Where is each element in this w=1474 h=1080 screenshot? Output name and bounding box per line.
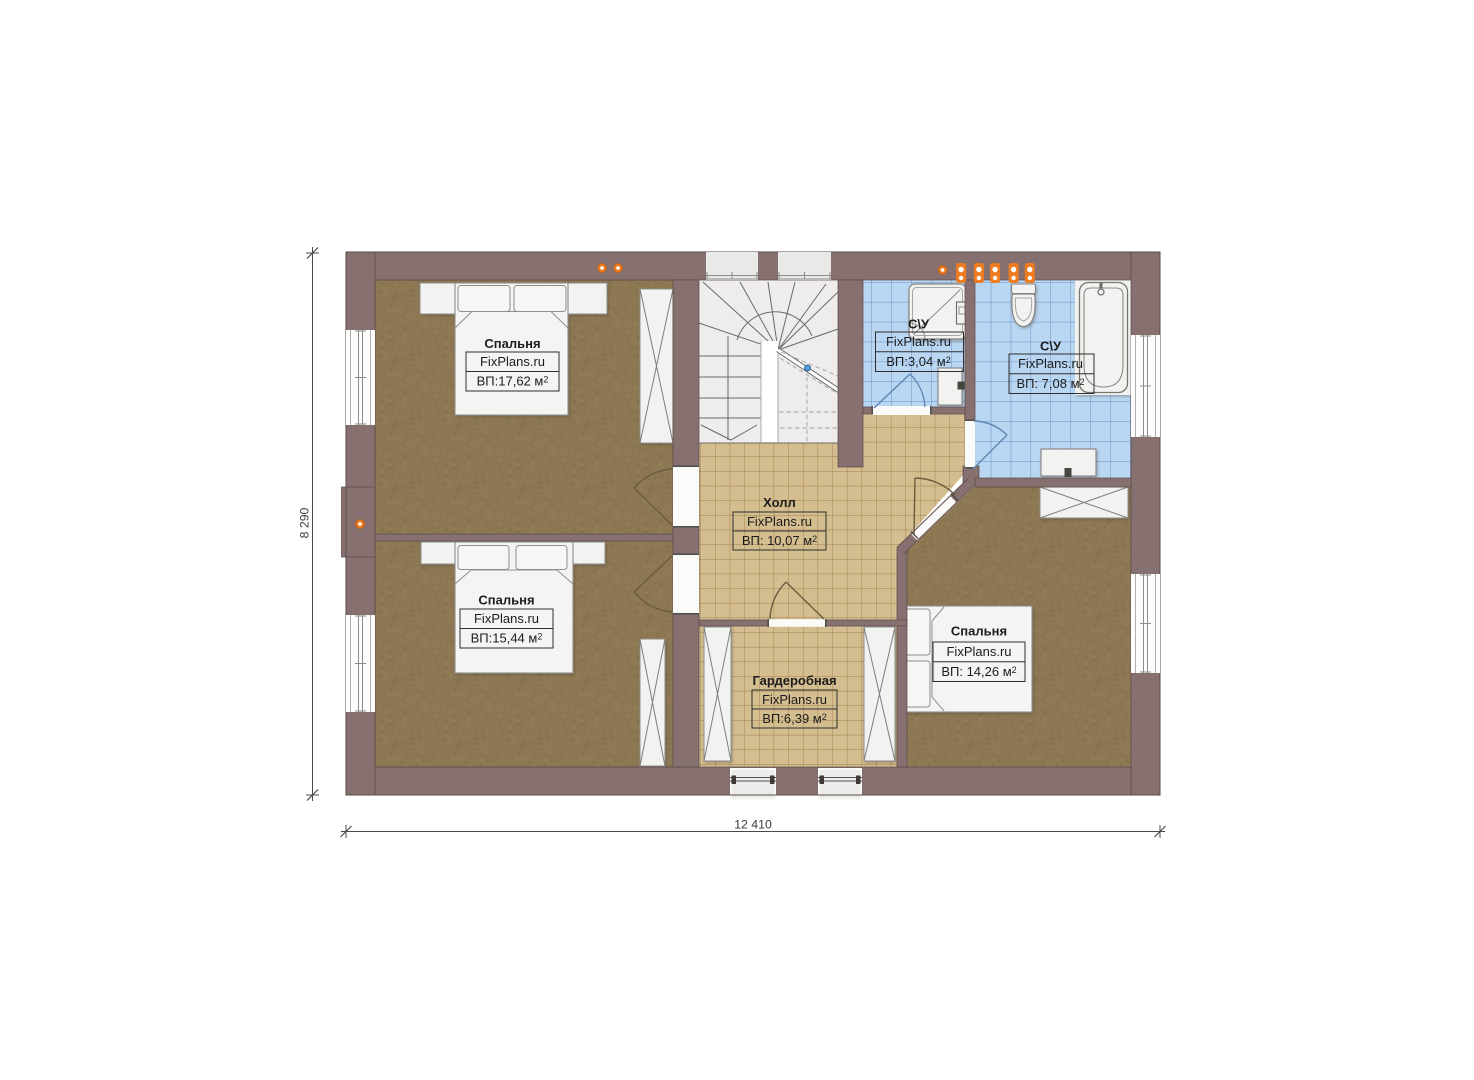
svg-text:ВП:6,39 м2: ВП:6,39 м2 xyxy=(762,711,827,726)
svg-text:ВП: 14,26 м2: ВП: 14,26 м2 xyxy=(941,664,1016,679)
svg-text:FixPlans.ru: FixPlans.ru xyxy=(747,514,812,529)
svg-text:FixPlans.ru: FixPlans.ru xyxy=(946,644,1011,659)
svg-text:ВП:15,44 м2: ВП:15,44 м2 xyxy=(471,631,543,646)
svg-text:ВП:3,04 м2: ВП:3,04 м2 xyxy=(886,354,951,369)
svg-text:Спальня: Спальня xyxy=(478,593,534,608)
svg-text:ВП:17,62 м2: ВП:17,62 м2 xyxy=(477,374,549,389)
svg-text:С\У: С\У xyxy=(1040,339,1062,354)
svg-text:FixPlans.ru: FixPlans.ru xyxy=(480,354,545,369)
svg-text:FixPlans.ru: FixPlans.ru xyxy=(1018,356,1083,371)
svg-text:С\У: С\У xyxy=(908,317,930,332)
svg-text:Холл: Холл xyxy=(763,495,796,510)
svg-text:FixPlans.ru: FixPlans.ru xyxy=(474,611,539,626)
svg-text:Спальня: Спальня xyxy=(951,624,1007,639)
svg-text:Спальня: Спальня xyxy=(484,336,540,351)
svg-text:8 290: 8 290 xyxy=(298,507,312,538)
svg-text:Гардеробная: Гардеробная xyxy=(752,673,836,688)
svg-text:ВП: 10,07 м2: ВП: 10,07 м2 xyxy=(742,533,817,548)
svg-text:12 410: 12 410 xyxy=(734,818,772,832)
svg-text:FixPlans.ru: FixPlans.ru xyxy=(886,334,951,349)
svg-text:FixPlans.ru: FixPlans.ru xyxy=(762,692,827,707)
svg-text:ВП: 7,08 м2: ВП: 7,08 м2 xyxy=(1016,376,1084,391)
